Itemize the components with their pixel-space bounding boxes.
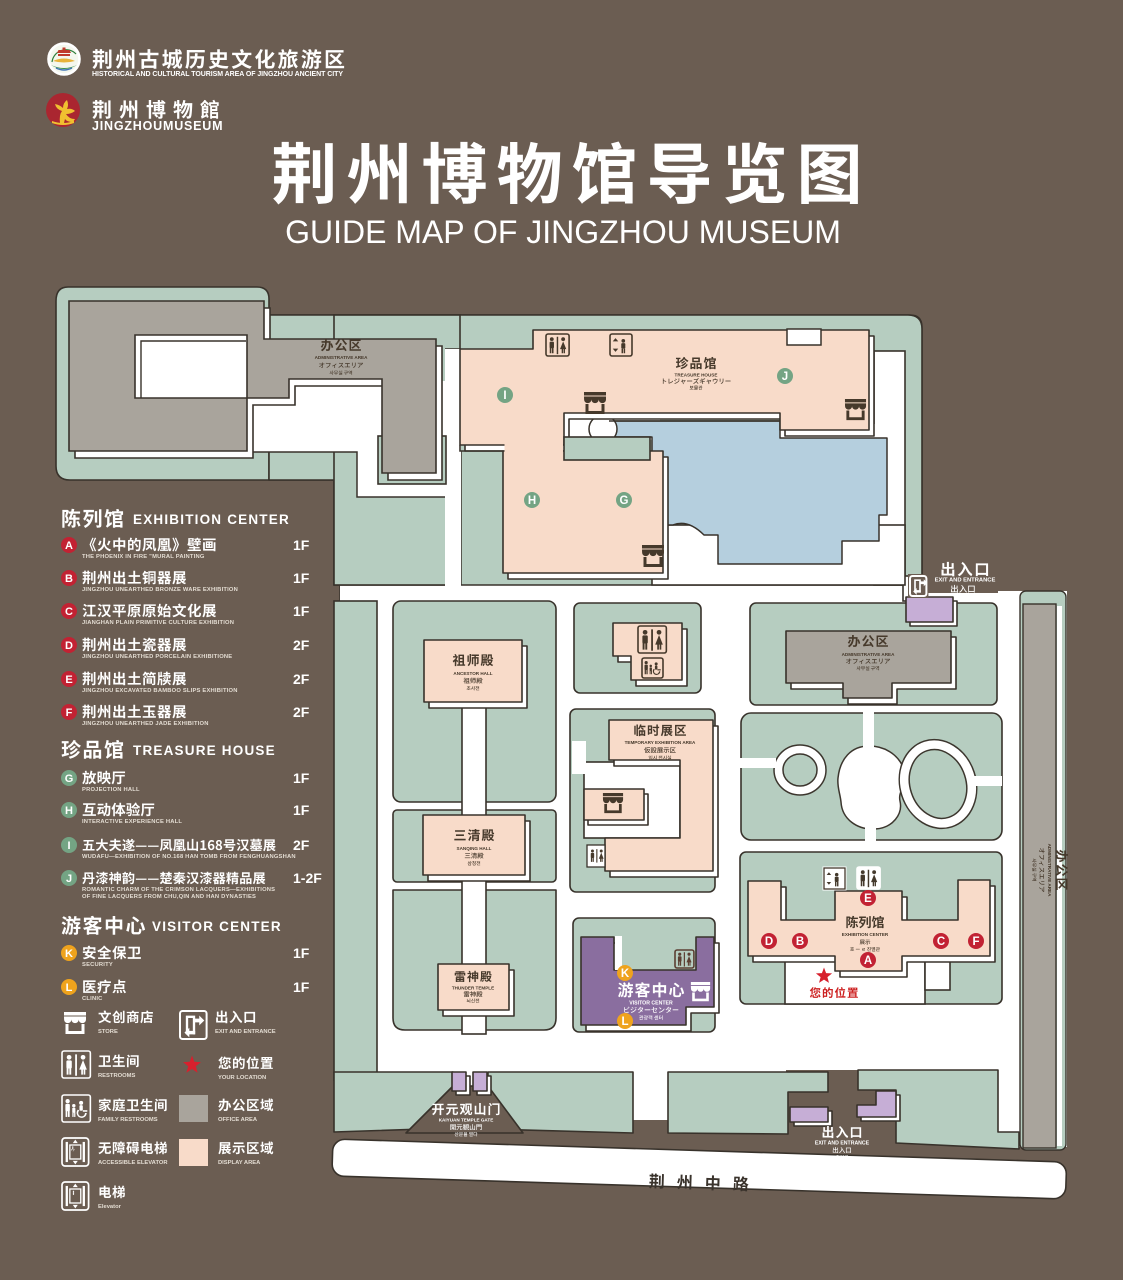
svg-text:GUIDE MAP OF JINGZHOU MUSEUM: GUIDE MAP OF JINGZHOU MUSEUM <box>285 214 841 250</box>
svg-text:H: H <box>528 495 536 507</box>
svg-text:FAMILY RESTROOMS: FAMILY RESTROOMS <box>98 1117 158 1123</box>
svg-text:E: E <box>65 674 72 686</box>
svg-text:1F: 1F <box>293 945 310 961</box>
svg-text:C: C <box>65 606 73 618</box>
svg-text:EXIT AND ENTRANCE: EXIT AND ENTRANCE <box>215 1029 276 1035</box>
svg-text:B: B <box>796 936 804 948</box>
svg-text:Elevator: Elevator <box>98 1204 122 1210</box>
svg-text:ADMINISTRATIVE AREA: ADMINISTRATIVE AREA <box>842 652 896 657</box>
svg-text:L: L <box>621 1016 628 1028</box>
svg-text:CLINIC: CLINIC <box>82 996 103 1002</box>
svg-text:TREASURE HOUSE: TREASURE HOUSE <box>133 743 276 758</box>
svg-text:ROMANTIC CHARM OF THE CRIMSON: ROMANTIC CHARM OF THE CRIMSON LACQUERS—E… <box>82 887 275 893</box>
svg-text:J: J <box>782 371 788 383</box>
svg-text:E: E <box>864 893 872 905</box>
svg-text:1F: 1F <box>293 603 310 619</box>
svg-text:PROJECTION HALL: PROJECTION HALL <box>82 787 140 793</box>
svg-text:2F: 2F <box>293 637 310 653</box>
svg-text:B: B <box>65 573 73 585</box>
svg-text:DISPLAY AREA: DISPLAY AREA <box>218 1160 261 1166</box>
svg-text:ANCESTOR HALL: ANCESTOR HALL <box>453 671 492 676</box>
svg-text:H: H <box>65 805 73 817</box>
svg-text:YOUR LOCATION: YOUR LOCATION <box>218 1075 266 1081</box>
svg-text:THE PHOENIX IN FIRE "MURAL PAI: THE PHOENIX IN FIRE "MURAL PAINTING <box>82 554 205 560</box>
svg-text:ADMINISTRATIVE AREA: ADMINISTRATIVE AREA <box>315 355 369 360</box>
svg-text:C: C <box>937 936 945 948</box>
svg-text:JINGZHOU EXCAVATED BAMBOO SLIP: JINGZHOU EXCAVATED BAMBOO SLIPS EXHIBITI… <box>82 688 238 694</box>
svg-text:ACCESSIBLE ELEVATOR: ACCESSIBLE ELEVATOR <box>98 1160 168 1166</box>
svg-text:J: J <box>66 873 72 885</box>
svg-text:F: F <box>66 707 73 719</box>
svg-text:D: D <box>65 640 73 652</box>
svg-text:TREASURE HOUSE: TREASURE HOUSE <box>675 373 718 378</box>
svg-text:ADMINISTRATIVE AREA: ADMINISTRATIVE AREA <box>1047 844 1052 898</box>
svg-text:SANQING HALL: SANQING HALL <box>457 846 492 851</box>
svg-text:JINGZHOU UNEARTHED JADE EXHIBI: JINGZHOU UNEARTHED JADE EXHIBITION <box>82 721 209 727</box>
svg-text:A: A <box>65 540 73 552</box>
svg-text:SECURITY: SECURITY <box>82 962 113 968</box>
svg-text:1F: 1F <box>293 979 310 995</box>
svg-text:EXHIBITION CENTER: EXHIBITION CENTER <box>133 512 290 527</box>
svg-text:JIANGHAN PLAIN PRIMITIVE CULTU: JIANGHAN PLAIN PRIMITIVE CULTURE EXHIBIT… <box>82 620 234 626</box>
svg-text:WUDAFU—EXHIBITION OF NO.168 HA: WUDAFU—EXHIBITION OF NO.168 HAN TOMB FRO… <box>82 854 296 860</box>
svg-text:JINGZHOU UNEARTHED PORCELAIN E: JINGZHOU UNEARTHED PORCELAIN EXHIBITIONE <box>82 654 232 660</box>
svg-text:EXIT AND ENTRANCE: EXIT AND ENTRANCE <box>935 578 996 584</box>
svg-text:D: D <box>765 936 773 948</box>
svg-text:OFFICE AREA: OFFICE AREA <box>218 1117 258 1123</box>
svg-text:VISITOR CENTER: VISITOR CENTER <box>629 1001 673 1007</box>
svg-text:JINGZHOU UNEARTHED BRONZE WARE: JINGZHOU UNEARTHED BRONZE WARE EXHIBITIO… <box>82 587 238 593</box>
svg-text:G: G <box>620 495 629 507</box>
svg-text:I: I <box>503 390 506 402</box>
svg-text:2F: 2F <box>293 671 310 687</box>
svg-text:A: A <box>864 955 872 967</box>
svg-text:1F: 1F <box>293 570 310 586</box>
svg-text:RESTROOMS: RESTROOMS <box>98 1073 135 1079</box>
svg-text:STORE: STORE <box>98 1029 118 1035</box>
svg-text:JINGZHOUMUSEUM: JINGZHOUMUSEUM <box>92 119 223 133</box>
svg-text:VISITOR CENTER: VISITOR CENTER <box>152 919 282 934</box>
svg-text:THUNDER TEMPLE: THUNDER TEMPLE <box>452 986 494 991</box>
svg-text:L: L <box>66 982 73 994</box>
svg-text:I: I <box>67 840 70 852</box>
svg-text:K: K <box>65 948 73 960</box>
svg-text:1F: 1F <box>293 537 310 553</box>
svg-text:KAIYUAN TEMPLE GATE: KAIYUAN TEMPLE GATE <box>439 1118 494 1123</box>
svg-text:INTERACTIVE EXPERIENCE HALL: INTERACTIVE EXPERIENCE HALL <box>82 819 182 825</box>
svg-text:G: G <box>65 773 74 785</box>
svg-text:1F: 1F <box>293 770 310 786</box>
svg-text:OF FINE LACQUERS FROM CHU,QIN: OF FINE LACQUERS FROM CHU,QIN AND HAN DY… <box>82 894 256 900</box>
svg-text:TEMPORARY EXHIBITION AREA: TEMPORARY EXHIBITION AREA <box>625 740 696 745</box>
svg-text:K: K <box>621 968 630 980</box>
svg-text:2F: 2F <box>293 704 310 720</box>
svg-text:1-2F: 1-2F <box>293 870 322 886</box>
svg-text:EXIT AND ENTRANCE: EXIT AND ENTRANCE <box>815 1141 870 1147</box>
svg-text:F: F <box>972 936 979 948</box>
svg-text:HISTORICAL AND CULTURAL TOURIS: HISTORICAL AND CULTURAL TOURISM AREA OF … <box>92 71 343 78</box>
svg-text:EXHIBITION CENTER: EXHIBITION CENTER <box>842 932 889 937</box>
svg-text:2F: 2F <box>293 837 310 853</box>
svg-text:1F: 1F <box>293 802 310 818</box>
